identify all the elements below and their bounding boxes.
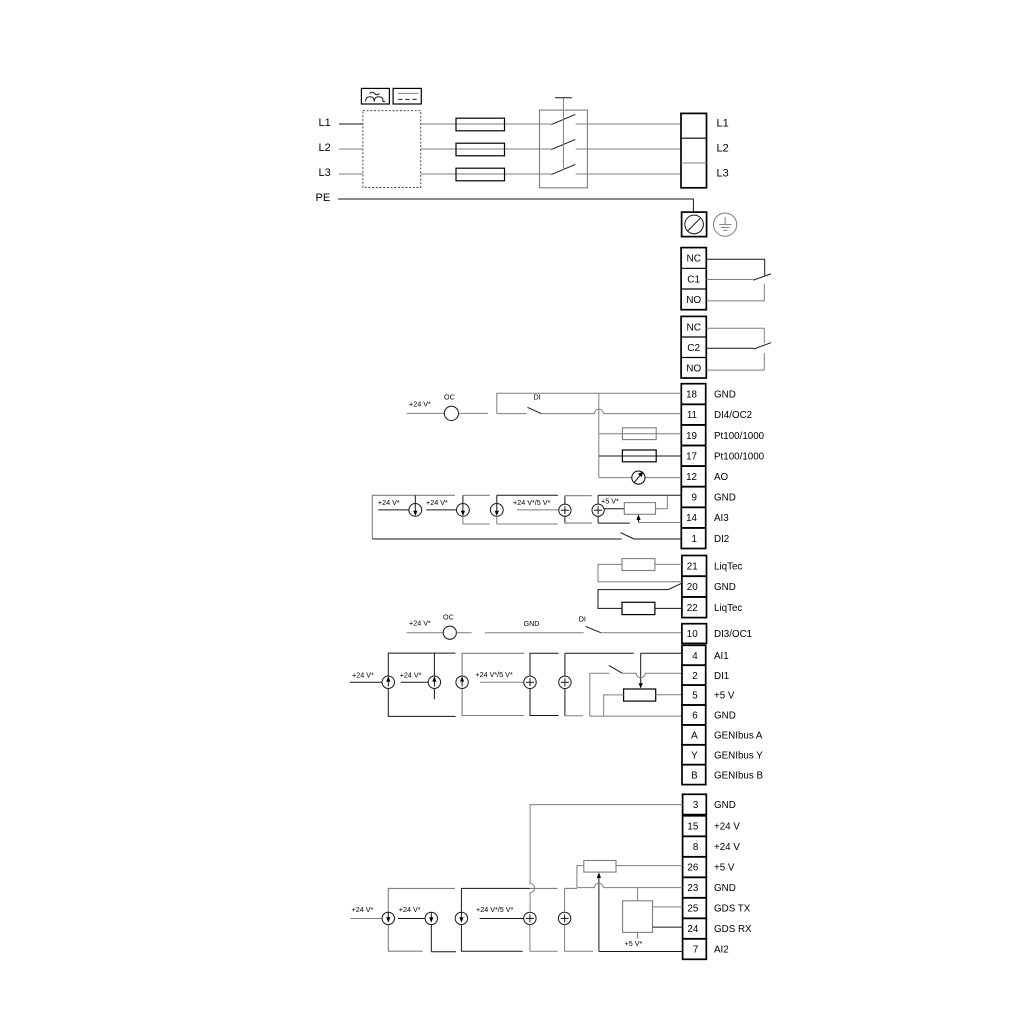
- svg-text:PE: PE: [316, 192, 331, 204]
- svg-text:+5 V: +5 V: [714, 863, 735, 874]
- svg-text:10: 10: [687, 629, 698, 640]
- svg-text:23: 23: [687, 883, 698, 894]
- svg-text:DI1: DI1: [714, 671, 729, 682]
- svg-text:4: 4: [692, 651, 698, 662]
- svg-text:+24 V*/5 V*: +24 V*/5 V*: [476, 905, 514, 914]
- svg-text:DI4/OC2: DI4/OC2: [714, 410, 752, 421]
- svg-text:1: 1: [692, 534, 697, 545]
- svg-text:L3: L3: [717, 168, 729, 180]
- svg-text:L2: L2: [717, 143, 729, 155]
- svg-text:GDS RX: GDS RX: [714, 924, 752, 935]
- svg-text:20: 20: [687, 582, 698, 593]
- svg-text:GND: GND: [524, 619, 540, 628]
- svg-text:C2: C2: [687, 343, 700, 354]
- svg-text:19: 19: [686, 431, 697, 442]
- svg-text:L2: L2: [319, 142, 331, 154]
- svg-text:GDS TX: GDS TX: [714, 904, 751, 915]
- svg-text:2: 2: [692, 671, 697, 682]
- svg-text:21: 21: [687, 561, 698, 572]
- svg-text:17: 17: [686, 451, 697, 462]
- svg-text:GND: GND: [714, 582, 736, 593]
- svg-text:DI2: DI2: [714, 534, 729, 545]
- svg-text:+5 V*: +5 V*: [625, 939, 643, 948]
- svg-text:+5 V: +5 V: [714, 691, 735, 702]
- svg-text:11: 11: [687, 410, 697, 421]
- svg-text:5: 5: [692, 691, 698, 702]
- svg-text:L3: L3: [319, 167, 331, 179]
- svg-text:15: 15: [687, 822, 698, 833]
- svg-text:+24 V*: +24 V*: [378, 498, 400, 507]
- svg-text:GENIbus B: GENIbus B: [714, 770, 763, 781]
- svg-text:7: 7: [693, 945, 698, 956]
- svg-text:+5 V*: +5 V*: [601, 496, 619, 505]
- svg-text:Pt100/1000: Pt100/1000: [714, 451, 765, 462]
- svg-text:+24 V*: +24 V*: [352, 905, 374, 914]
- svg-text:A: A: [691, 731, 698, 742]
- svg-text:GND: GND: [714, 493, 736, 504]
- svg-text:Y: Y: [691, 750, 698, 761]
- svg-text:NC: NC: [686, 254, 700, 265]
- svg-text:GENIbus Y: GENIbus Y: [714, 750, 763, 761]
- svg-text:GND: GND: [714, 711, 736, 722]
- svg-text:+24 V*/5 V*: +24 V*/5 V*: [513, 498, 551, 507]
- svg-text:14: 14: [686, 513, 697, 524]
- svg-text:AI2: AI2: [714, 945, 729, 956]
- svg-text:OC: OC: [444, 393, 455, 402]
- svg-text:GND: GND: [714, 390, 736, 401]
- svg-text:Pt100/1000: Pt100/1000: [714, 431, 765, 442]
- svg-text:3: 3: [693, 800, 699, 811]
- svg-text:LiqTec: LiqTec: [714, 603, 742, 614]
- svg-text:OC: OC: [443, 612, 454, 621]
- svg-text:L1: L1: [319, 117, 331, 129]
- svg-text:+24 V*: +24 V*: [409, 619, 431, 628]
- svg-text:DI: DI: [579, 615, 586, 624]
- svg-text:AI3: AI3: [714, 513, 729, 524]
- svg-text:AO: AO: [714, 472, 729, 483]
- svg-text:+24 V*: +24 V*: [399, 905, 421, 914]
- svg-text:9: 9: [692, 493, 697, 504]
- svg-text:NC: NC: [686, 322, 700, 333]
- svg-text:AI1: AI1: [714, 651, 729, 662]
- svg-text:GND: GND: [714, 800, 736, 811]
- svg-text:C1: C1: [687, 274, 700, 285]
- svg-text:+24 V: +24 V: [714, 822, 740, 833]
- svg-text:8: 8: [693, 842, 699, 853]
- svg-text:GND: GND: [714, 883, 736, 894]
- svg-text:NO: NO: [686, 295, 701, 306]
- svg-text:+24 V*: +24 V*: [409, 399, 431, 408]
- svg-text:NO: NO: [686, 364, 701, 375]
- svg-text:DI3/OC1: DI3/OC1: [714, 629, 752, 640]
- svg-text:B: B: [691, 770, 698, 781]
- svg-text:12: 12: [686, 472, 697, 483]
- svg-text:+24 V*: +24 V*: [400, 670, 422, 679]
- svg-text:6: 6: [692, 711, 698, 722]
- svg-text:24: 24: [687, 924, 698, 935]
- svg-text:+24 V*: +24 V*: [352, 670, 374, 679]
- svg-text:18: 18: [686, 390, 697, 401]
- svg-text:+24 V: +24 V: [714, 842, 740, 853]
- svg-text:L1: L1: [717, 118, 729, 130]
- svg-text:+24 V*/5 V*: +24 V*/5 V*: [475, 670, 513, 679]
- svg-text:+24 V*: +24 V*: [426, 498, 448, 507]
- svg-text:LiqTec: LiqTec: [714, 561, 742, 572]
- svg-text:22: 22: [687, 603, 698, 614]
- svg-text:GENIbus A: GENIbus A: [714, 731, 763, 742]
- svg-text:25: 25: [687, 904, 698, 915]
- svg-text:26: 26: [687, 863, 698, 874]
